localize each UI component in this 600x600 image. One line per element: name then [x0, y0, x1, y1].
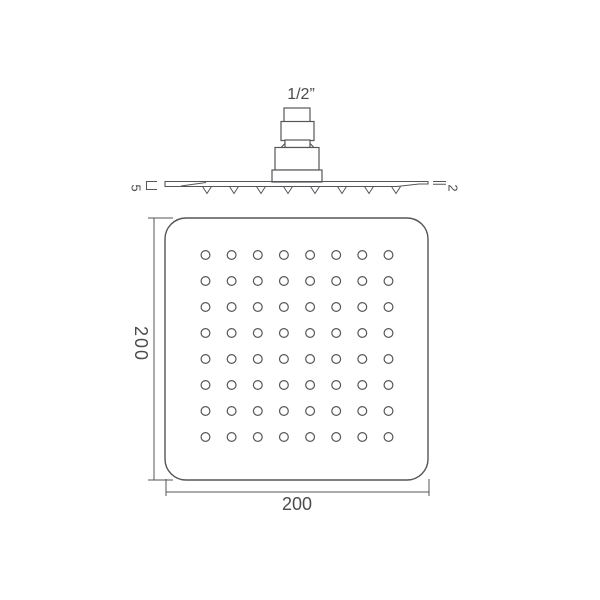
nozzle-hole [201, 355, 210, 364]
connector [272, 108, 322, 182]
nozzle-hole [306, 407, 315, 416]
connector-nut [281, 122, 314, 141]
nozzle-hole [358, 381, 367, 390]
nozzle-hole [201, 381, 210, 390]
nozzle-hole [306, 329, 315, 338]
nozzle-tooth [230, 187, 239, 194]
connector-flange [272, 170, 322, 182]
nozzle-tooth [392, 187, 401, 194]
nozzle-hole [384, 303, 393, 312]
height-dimension-label: 200 [132, 326, 150, 362]
nozzle-hole [306, 251, 315, 260]
nozzle-hole [306, 433, 315, 442]
nozzle-tooth [203, 187, 212, 194]
nozzle-hole [358, 329, 367, 338]
thickness-dimension [147, 182, 158, 190]
nozzle-hole [384, 251, 393, 260]
width-dimension-label: 200 [282, 495, 312, 513]
nozzle-hole [332, 329, 341, 338]
nozzle-hole [253, 251, 262, 260]
nozzle-hole [253, 433, 262, 442]
nozzle-tooth [365, 187, 374, 194]
nozzle-hole [253, 381, 262, 390]
face-view [148, 218, 429, 496]
nozzle-hole [201, 303, 210, 312]
nozzle-hole [227, 433, 236, 442]
nozzle-hole [332, 355, 341, 364]
connector-housing [275, 148, 319, 171]
nozzle-hole [332, 251, 341, 260]
nozzle-hole [358, 433, 367, 442]
nozzle-hole [358, 407, 367, 416]
nozzle-hole [227, 355, 236, 364]
nozzle-hole [384, 329, 393, 338]
edge-dimension [433, 182, 446, 185]
nozzle-hole [306, 303, 315, 312]
connector-size-label: 1/2” [287, 87, 315, 103]
nozzle-hole [253, 329, 262, 338]
nozzle-hole [201, 277, 210, 286]
nozzle-hole [201, 407, 210, 416]
nozzle-tooth [338, 187, 347, 194]
nozzle-hole [358, 355, 367, 364]
nozzle-hole [280, 381, 289, 390]
nozzle-hole [280, 303, 289, 312]
nozzle-hole [384, 277, 393, 286]
nozzle-hole [280, 251, 289, 260]
nozzle-hole [358, 303, 367, 312]
technical-drawing-canvas: 1/2” 5 2 200 200 [0, 0, 600, 600]
side-view [147, 108, 447, 194]
nozzle-hole [306, 355, 315, 364]
nozzle-hole [306, 381, 315, 390]
nozzle-hole [253, 303, 262, 312]
nozzle-hole [253, 407, 262, 416]
nozzle-hole [201, 433, 210, 442]
nozzle-hole [358, 251, 367, 260]
connector-thread [284, 108, 310, 122]
thickness-dimension-bracket [147, 182, 158, 190]
edge-dimension-dashes [433, 182, 446, 185]
nozzle-hole [332, 303, 341, 312]
nozzle-hole [227, 277, 236, 286]
nozzle-hole [384, 433, 393, 442]
nozzle-hole [280, 355, 289, 364]
nozzle-hole [227, 381, 236, 390]
nozzle-hole [280, 277, 289, 286]
nozzle-hole [384, 381, 393, 390]
nozzle-hole [227, 303, 236, 312]
nozzle-hole [201, 251, 210, 260]
nozzle-hole [332, 407, 341, 416]
nozzle-hole [253, 355, 262, 364]
nozzle-hole [227, 329, 236, 338]
nozzle-hole [332, 381, 341, 390]
nozzle-hole [280, 407, 289, 416]
nozzle-hole [306, 277, 315, 286]
edge-thickness-label: 2 [447, 184, 460, 191]
nozzle-hole [280, 329, 289, 338]
nozzle-hole [332, 433, 341, 442]
total-thickness-label: 5 [130, 184, 143, 191]
plate-underside-edge [181, 183, 206, 187]
nozzle-hole [201, 329, 210, 338]
nozzle-hole [332, 277, 341, 286]
nozzle-teeth [203, 187, 401, 194]
nozzle-hole [384, 355, 393, 364]
nozzle-tooth [311, 187, 320, 194]
nozzle-hole [384, 407, 393, 416]
nozzle-tooth [284, 187, 293, 194]
connector-collar [285, 140, 310, 148]
nozzle-hole [253, 277, 262, 286]
nozzle-tooth [257, 187, 266, 194]
nozzle-hole [358, 277, 367, 286]
nozzle-hole [280, 433, 289, 442]
nozzle-hole [227, 407, 236, 416]
nozzle-hole [227, 251, 236, 260]
